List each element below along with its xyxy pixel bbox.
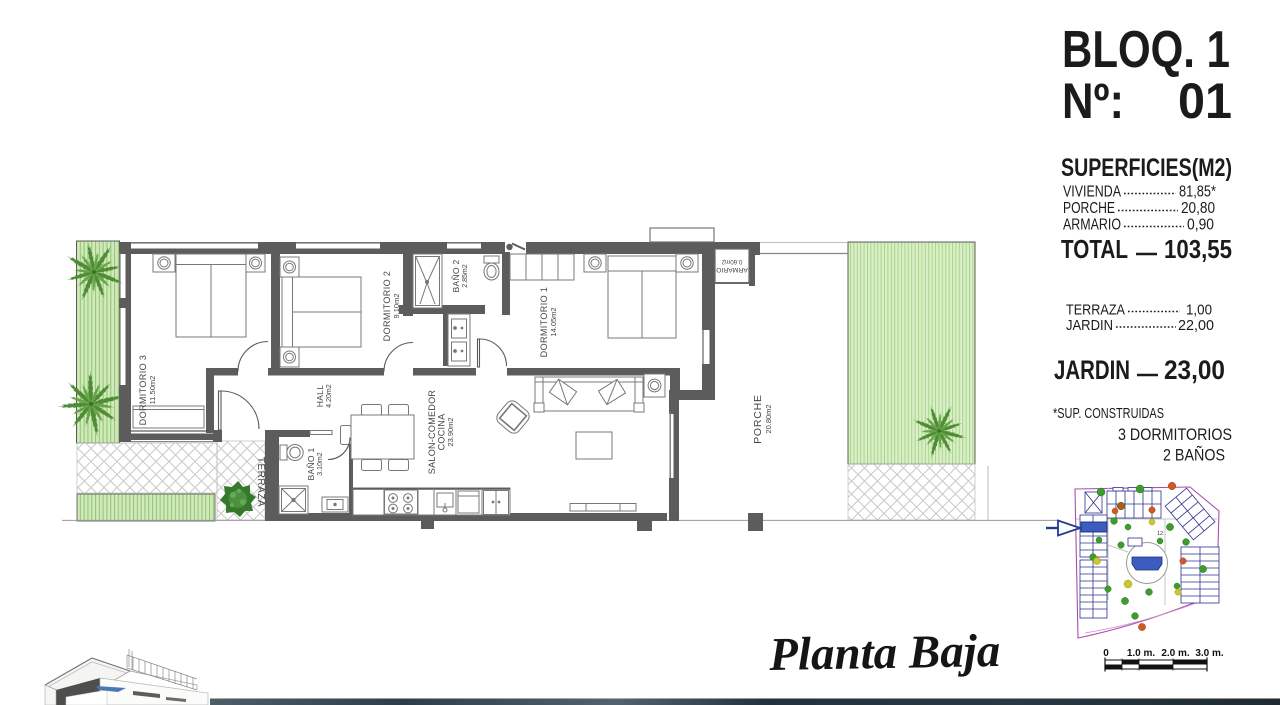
svg-text:2.85m2: 2.85m2 [462,264,469,287]
svg-text:2 BAÑOS: 2 BAÑOS [1163,446,1225,465]
svg-text:4.20m2: 4.20m2 [326,384,333,407]
svg-text:14.05m2: 14.05m2 [549,307,558,336]
svg-text:DORMITORIO 3: DORMITORIO 3 [138,355,148,426]
svg-text:1.0 m.: 1.0 m. [1127,648,1156,659]
svg-text:12.: 12. [1157,531,1165,537]
svg-text:JARDIN: JARDIN [1066,317,1113,334]
svg-text:Planta Baja: Planta Baja [768,625,1001,681]
svg-text:DORMITORIO 1: DORMITORIO 1 [539,287,549,358]
svg-text:23.90m2: 23.90m2 [446,417,455,446]
svg-text:*SUP. CONSTRUIDAS: *SUP. CONSTRUIDAS [1053,406,1164,422]
svg-text:103,55: 103,55 [1164,234,1232,264]
svg-text:COCINA: COCINA [437,414,447,451]
svg-text:3 DORMITORIOS: 3 DORMITORIOS [1118,425,1232,444]
svg-text:0: 0 [1103,648,1109,659]
svg-text:DORMITORIO 2: DORMITORIO 2 [382,271,392,342]
svg-text:11.50m2: 11.50m2 [148,376,157,405]
svg-text:1,00: 1,00 [1186,302,1212,319]
svg-text:SUPERFICIES(M2): SUPERFICIES(M2) [1061,154,1232,182]
svg-text:23,00: 23,00 [1164,355,1225,385]
svg-text:0,90: 0,90 [1187,217,1214,234]
svg-text:HALL: HALL [315,385,325,407]
svg-text:20.80m2: 20.80m2 [764,404,773,433]
svg-text:2.0 m.: 2.0 m. [1161,648,1190,659]
svg-text:3.0 m.: 3.0 m. [1195,648,1224,659]
svg-text:BLOQ. 1: BLOQ. 1 [1062,21,1230,79]
svg-text:22,00: 22,00 [1178,317,1214,334]
svg-text:SALON-COMEDOR: SALON-COMEDOR [427,390,437,475]
svg-text:9.10m2: 9.10m2 [392,293,401,318]
svg-text:ARMARIO: ARMARIO [1063,217,1121,234]
svg-text:TERRAZA: TERRAZA [255,457,266,507]
svg-text:20,80: 20,80 [1181,200,1215,217]
svg-text:PORCHE: PORCHE [752,394,764,444]
svg-text:TERRAZA: TERRAZA [1066,302,1125,319]
svg-text:3.10m2: 3.10m2 [317,452,324,475]
svg-text:VIVIENDA: VIVIENDA [1063,184,1122,201]
svg-text:PORCHE: PORCHE [1063,200,1115,217]
svg-text:TOTAL: TOTAL [1061,234,1128,264]
svg-text:0.60m2: 0.60m2 [721,258,742,265]
svg-text:01: 01 [1178,73,1232,129]
svg-text:BAÑO 2: BAÑO 2 [451,260,461,293]
svg-text:81,85*: 81,85* [1179,184,1216,201]
svg-text:ARMARIO: ARMARIO [716,266,748,273]
svg-text:JARDIN: JARDIN [1054,355,1130,385]
svg-text:Nº:: Nº: [1062,73,1124,129]
svg-text:BAÑO 1: BAÑO 1 [306,448,316,481]
